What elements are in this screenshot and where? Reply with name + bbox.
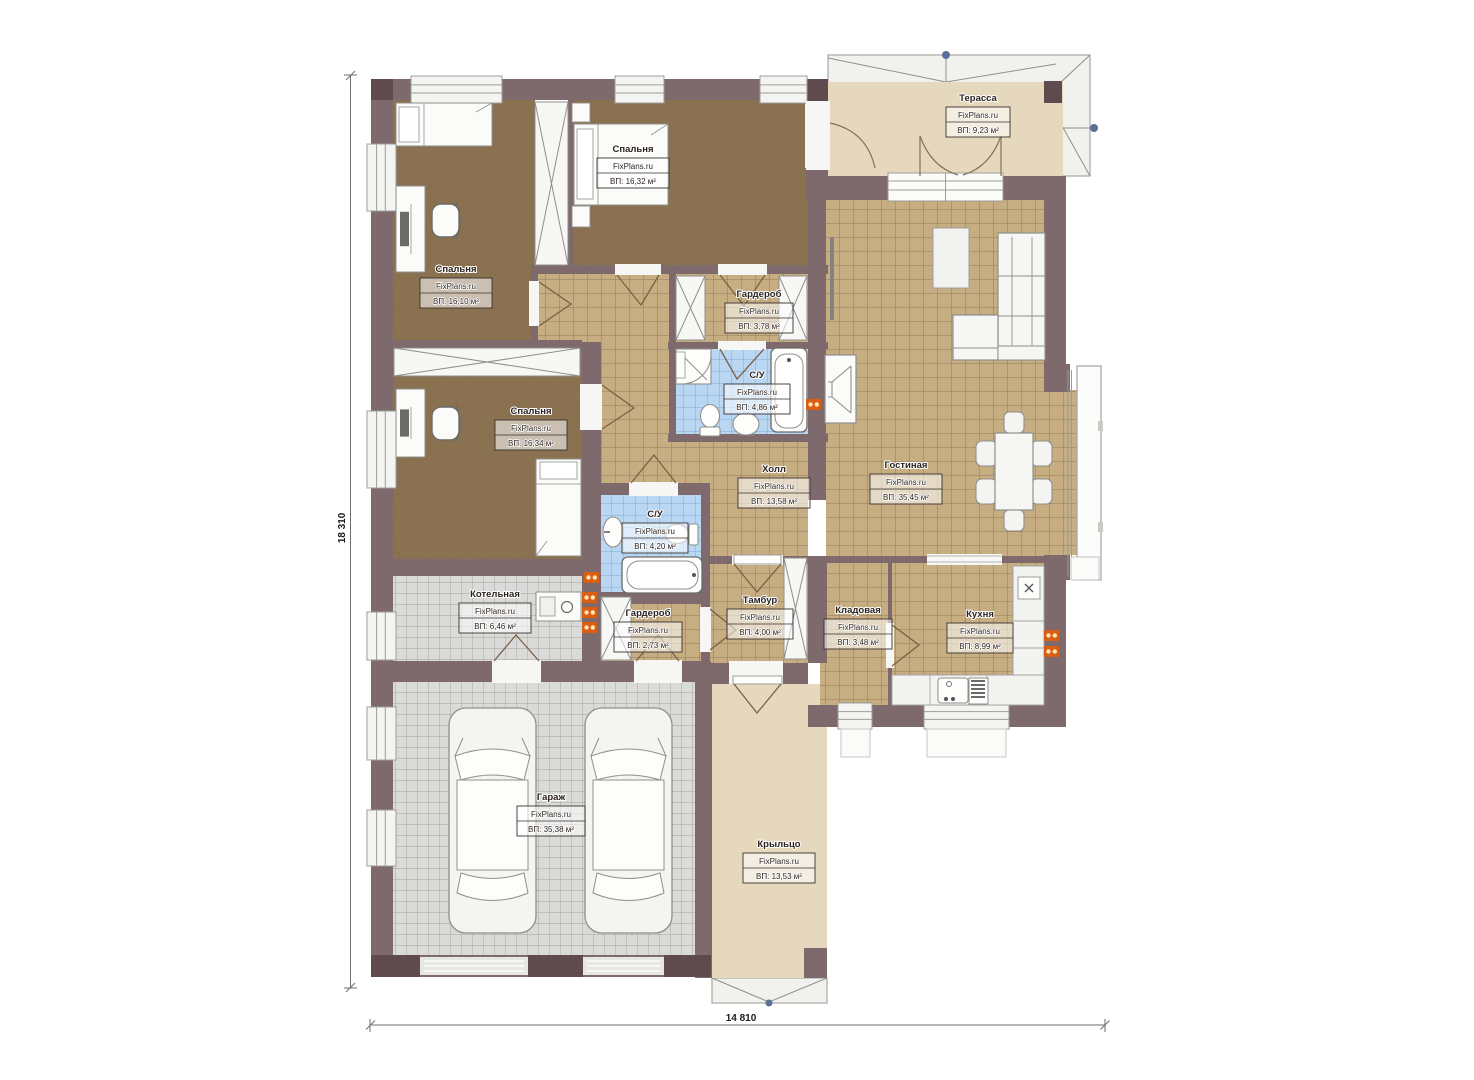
svg-text:Гардероб: Гардероб [737,289,782,300]
svg-text:Кухня: Кухня [966,609,994,620]
svg-text:Гардероб: Гардероб [626,608,671,619]
svg-text:ВП: 8,99 м²: ВП: 8,99 м² [959,642,1001,651]
svg-text:ВП: 16,34 м²: ВП: 16,34 м² [508,439,554,448]
svg-text:18 310: 18 310 [337,512,348,543]
svg-text:FixPlans.ru: FixPlans.ru [958,111,998,120]
svg-text:FixPlans.ru: FixPlans.ru [960,627,1000,636]
svg-text:FixPlans.ru: FixPlans.ru [739,307,779,316]
svg-text:FixPlans.ru: FixPlans.ru [759,857,799,866]
svg-text:ВП: 16,10 м²: ВП: 16,10 м² [433,297,479,306]
svg-text:Спальня: Спальня [510,406,551,417]
svg-text:Гостиная: Гостиная [885,460,928,471]
svg-text:Котельная: Котельная [470,589,520,600]
svg-text:FixPlans.ru: FixPlans.ru [737,388,777,397]
svg-text:FixPlans.ru: FixPlans.ru [886,478,926,487]
svg-text:ВП: 4,86 м²: ВП: 4,86 м² [736,403,778,412]
svg-text:FixPlans.ru: FixPlans.ru [754,482,794,491]
svg-text:FixPlans.ru: FixPlans.ru [475,607,515,616]
svg-text:14 810: 14 810 [726,1013,757,1024]
svg-text:FixPlans.ru: FixPlans.ru [613,162,653,171]
svg-text:ВП: 2,73 м²: ВП: 2,73 м² [627,641,669,650]
svg-text:Крыльцо: Крыльцо [757,839,800,850]
svg-text:ВП: 3,78 м²: ВП: 3,78 м² [738,322,780,331]
svg-text:С/У: С/У [647,509,663,520]
svg-text:FixPlans.ru: FixPlans.ru [628,626,668,635]
svg-text:С/У: С/У [749,370,765,381]
svg-text:FixPlans.ru: FixPlans.ru [838,623,878,632]
svg-text:Кладовая: Кладовая [835,605,881,616]
svg-text:ВП: 6,46 м²: ВП: 6,46 м² [474,622,516,631]
svg-text:ВП: 4,20 м²: ВП: 4,20 м² [634,542,676,551]
svg-text:ВП: 13,58 м²: ВП: 13,58 м² [751,497,797,506]
svg-text:Холл: Холл [762,464,786,475]
svg-text:FixPlans.ru: FixPlans.ru [635,527,675,536]
svg-text:Тамбур: Тамбур [743,595,778,606]
svg-text:Гараж: Гараж [537,792,566,803]
svg-text:Спальня: Спальня [612,144,653,155]
svg-text:Спальня: Спальня [435,264,476,275]
svg-text:Терасса: Терасса [959,93,997,104]
svg-text:ВП: 3,48 м²: ВП: 3,48 м² [837,638,879,647]
svg-text:ВП: 13,53 м²: ВП: 13,53 м² [756,872,802,881]
svg-text:FixPlans.ru: FixPlans.ru [511,424,551,433]
svg-text:ВП: 4,00 м²: ВП: 4,00 м² [739,628,781,637]
svg-text:ВП: 16,32 м²: ВП: 16,32 м² [610,177,656,186]
svg-text:FixPlans.ru: FixPlans.ru [436,282,476,291]
svg-text:ВП: 35,45 м²: ВП: 35,45 м² [883,493,929,502]
svg-text:ВП: 9,23 м²: ВП: 9,23 м² [957,126,999,135]
svg-text:FixPlans.ru: FixPlans.ru [740,613,780,622]
svg-text:FixPlans.ru: FixPlans.ru [531,810,571,819]
svg-text:ВП: 35,38 м²: ВП: 35,38 м² [528,825,574,834]
